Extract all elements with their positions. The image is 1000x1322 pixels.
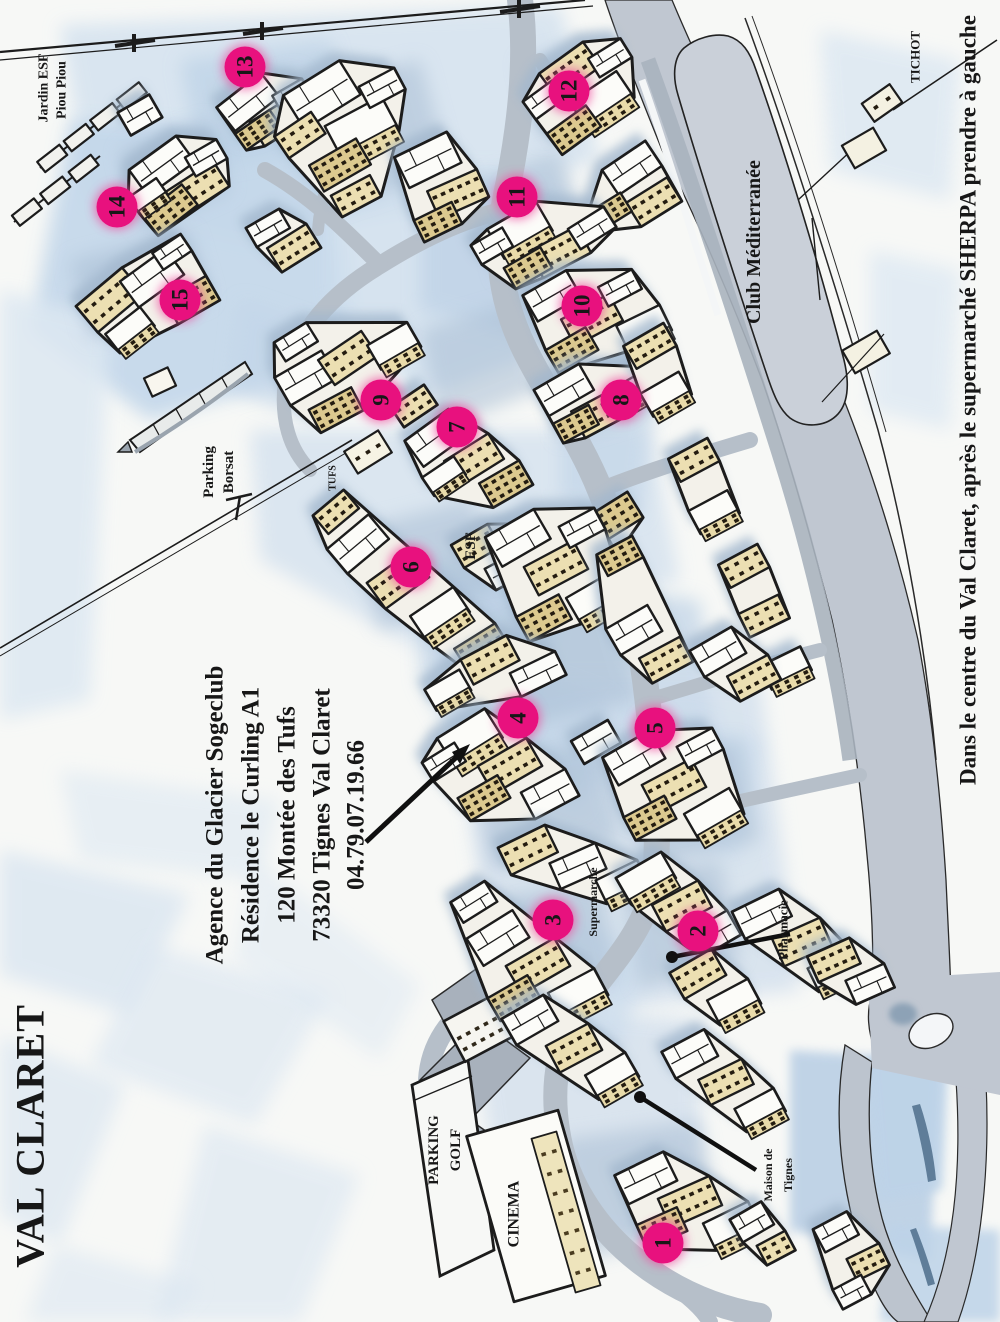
svg-text:CINEMA: CINEMA [506,1180,523,1247]
svg-text:3: 3 [541,914,566,926]
svg-text:PARKING: PARKING [426,1115,442,1185]
svg-text:5: 5 [643,722,668,734]
svg-text:14: 14 [105,195,130,219]
svg-text:8: 8 [609,394,634,406]
svg-text:73320 Tignes Val Claret: 73320 Tignes Val Claret [309,688,336,942]
svg-text:04.79.07.19.66: 04.79.07.19.66 [343,740,370,890]
svg-text:VAL CLARET: VAL CLARET [8,1004,53,1268]
svg-text:Pharmacie: Pharmacie [776,900,791,960]
svg-text:11: 11 [505,186,530,208]
svg-text:9: 9 [369,394,394,406]
svg-text:Parking: Parking [201,446,217,498]
svg-text:Agence du Glacier Sogeclub: Agence du Glacier Sogeclub [202,666,229,965]
svg-text:120 Montée des Tufs: 120 Montée des Tufs [274,706,301,924]
svg-text:GOLF: GOLF [448,1129,464,1172]
svg-text:Résidence le Curling A1: Résidence le Curling A1 [238,687,265,943]
svg-text:4: 4 [506,712,531,724]
svg-text:Jardin ESF: Jardin ESF [37,54,52,123]
svg-text:TUFS: TUFS [328,465,339,491]
svg-text:Maison de: Maison de [761,1148,775,1202]
svg-text:1: 1 [651,1237,676,1249]
svg-text:Borsat: Borsat [221,451,237,494]
svg-text:12: 12 [557,80,582,103]
svg-text:7: 7 [445,421,470,433]
svg-text:TICHOT: TICHOT [908,31,923,83]
svg-text:Supermarché: Supermarché [586,867,600,937]
svg-text:15: 15 [168,289,193,312]
svg-text:Dans le centre du Val Claret,: Dans le centre du Val Claret, après le s… [956,15,981,785]
svg-text:13: 13 [233,56,258,79]
svg-text:2: 2 [686,925,711,937]
svg-text:ESF: ESF [463,532,479,560]
svg-text:Tignes: Tignes [781,1158,795,1192]
svg-text:6: 6 [399,561,424,573]
svg-text:Piou Piou: Piou Piou [55,61,70,119]
svg-text:Club Méditerranée: Club Méditerranée [743,160,765,324]
svg-text:10: 10 [570,295,595,318]
